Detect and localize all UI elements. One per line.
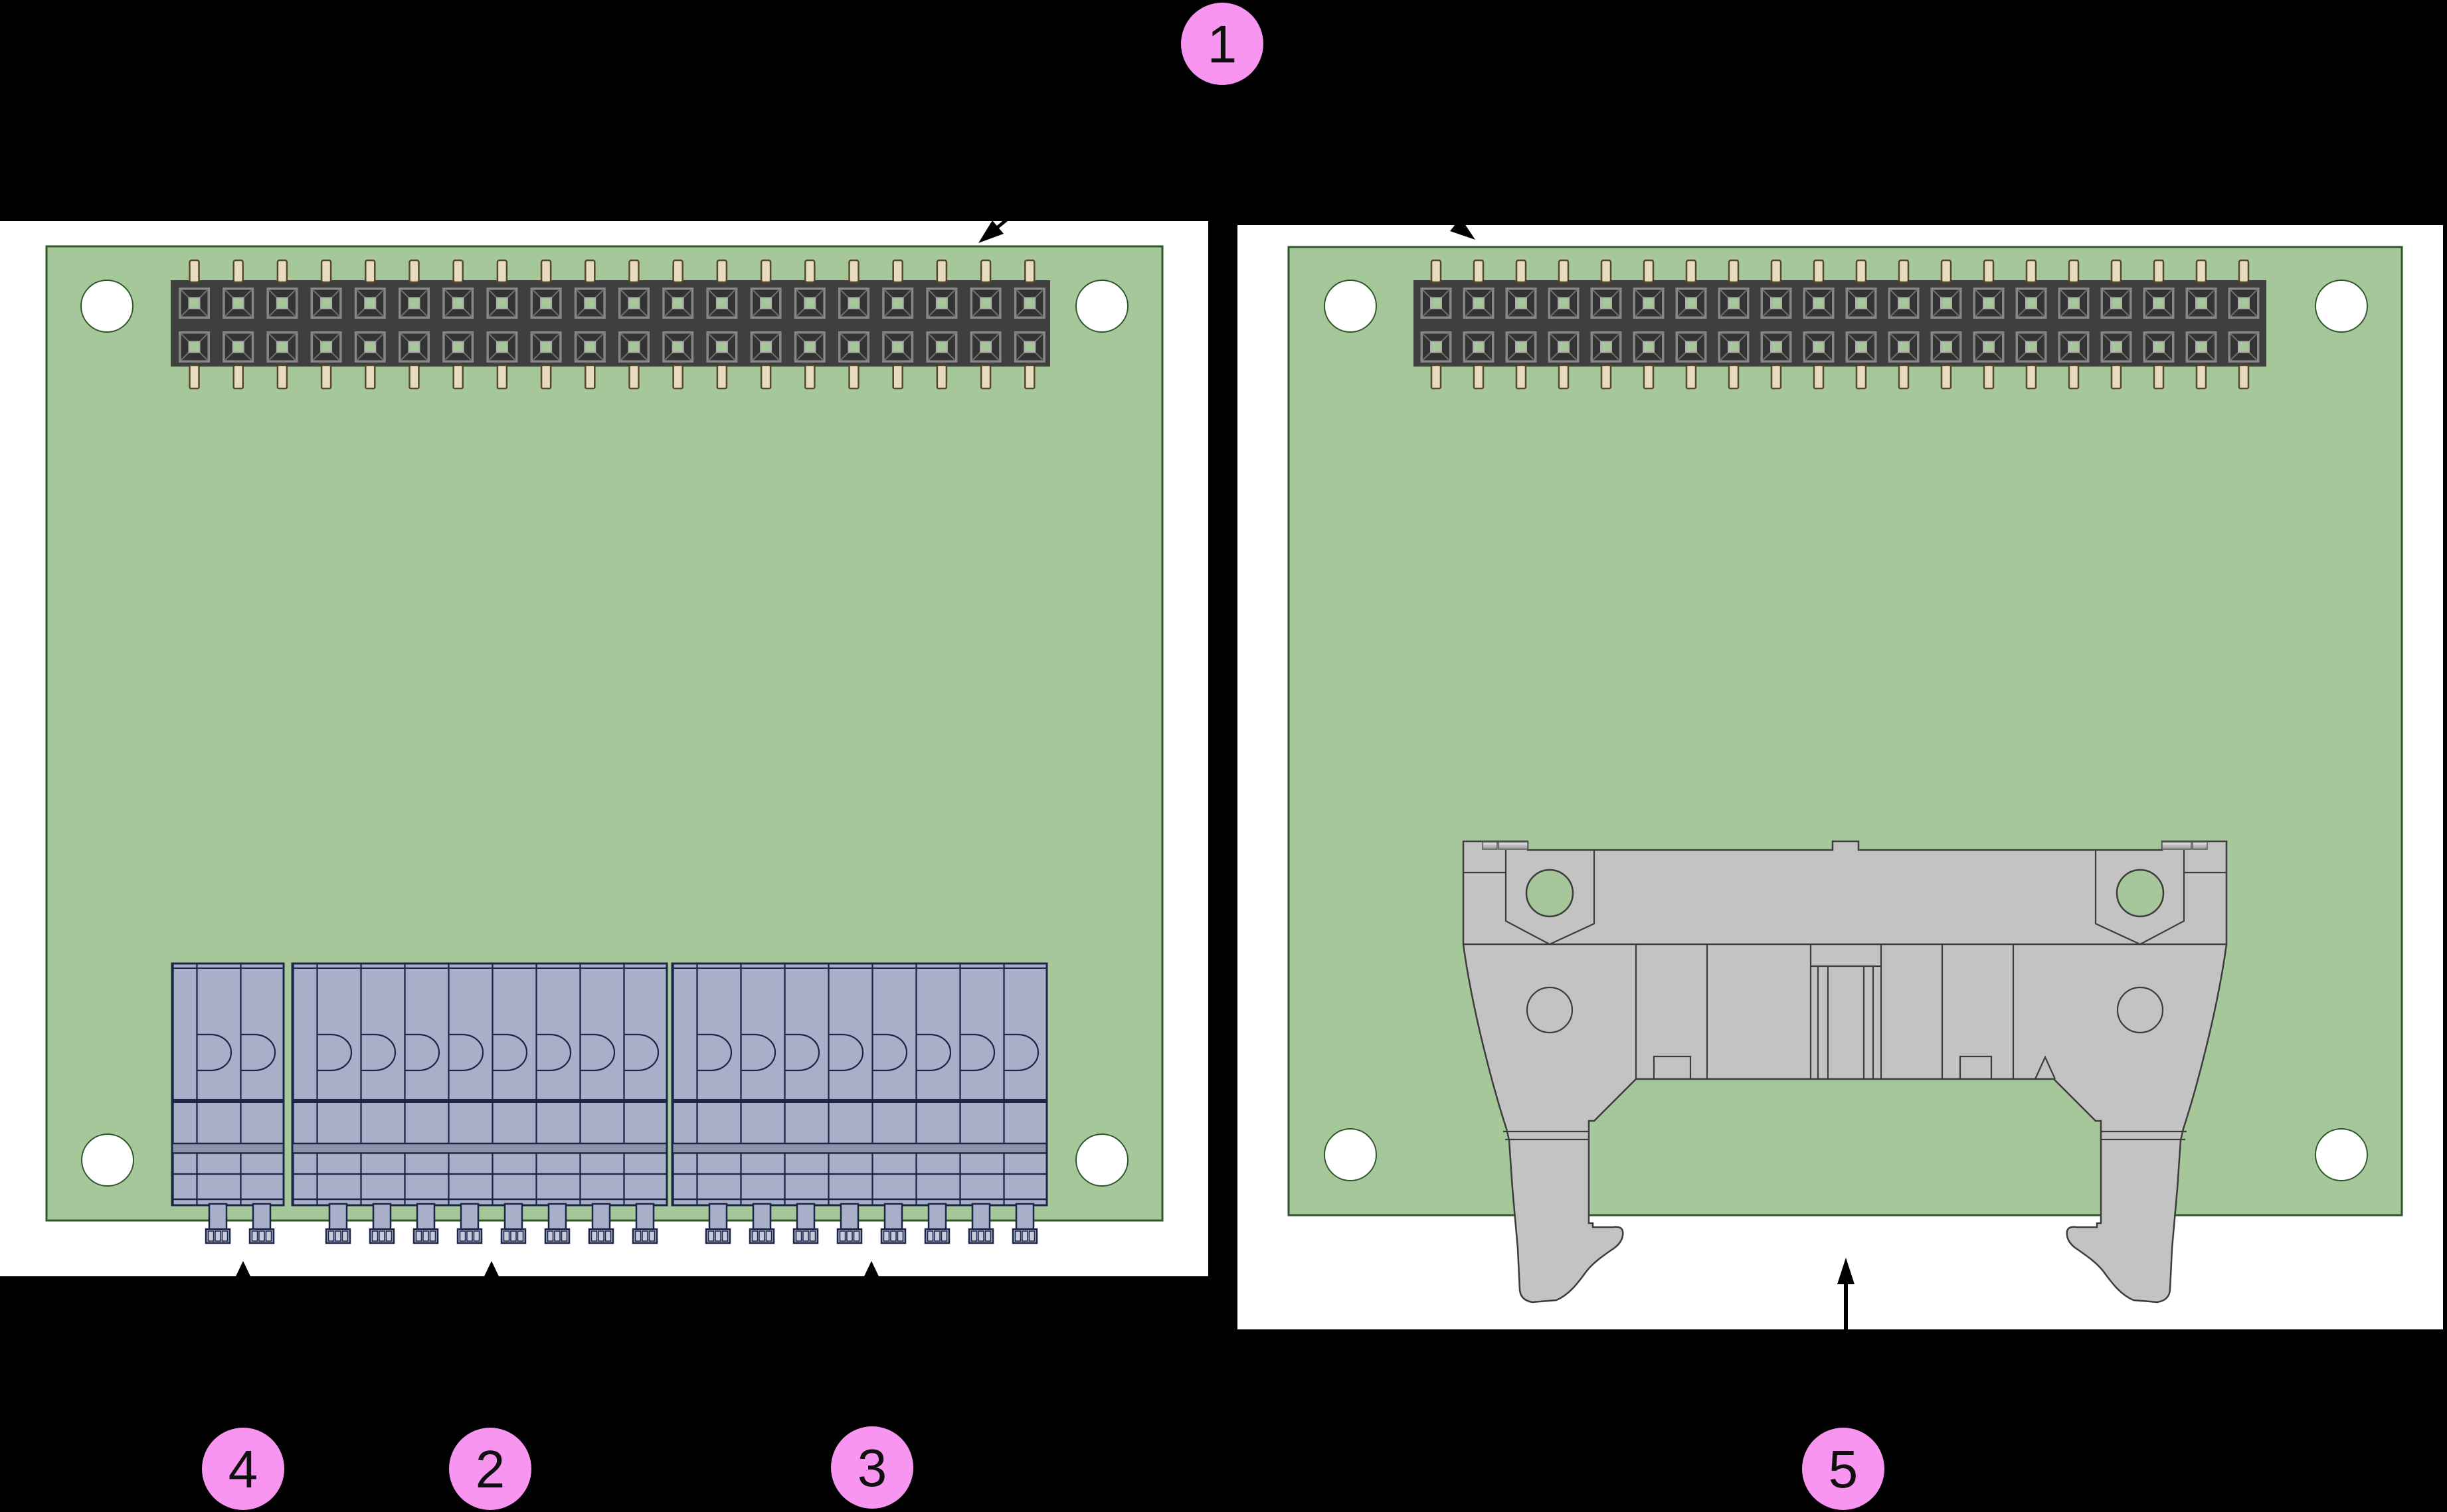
svg-text:5: 5 xyxy=(1829,1440,1858,1499)
svg-text:1: 1 xyxy=(1208,15,1237,74)
svg-text:3: 3 xyxy=(858,1438,887,1497)
svg-text:4: 4 xyxy=(228,1440,258,1499)
svg-text:2: 2 xyxy=(476,1440,505,1499)
